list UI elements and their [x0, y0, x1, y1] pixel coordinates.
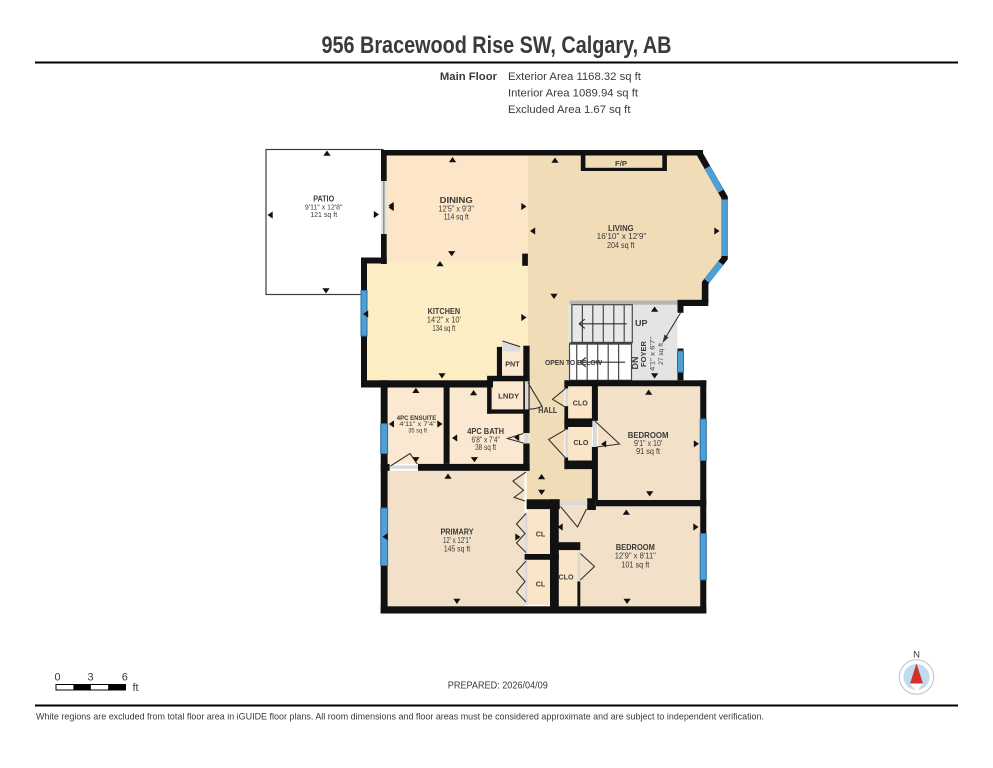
svg-text:CLO: CLO	[573, 399, 588, 408]
svg-text:CLO: CLO	[559, 572, 574, 581]
svg-text:OPEN TO BELOW: OPEN TO BELOW	[545, 358, 602, 367]
svg-text:114 sq ft: 114 sq ft	[444, 213, 470, 222]
svg-text:Excluded Area 1.67 sq ft: Excluded Area 1.67 sq ft	[508, 104, 631, 116]
svg-text:956 Bracewood Rise SW, Calgary: 956 Bracewood Rise SW, Calgary, AB	[322, 32, 672, 59]
svg-text:N: N	[913, 650, 920, 661]
svg-text:134 sq ft: 134 sq ft	[432, 324, 456, 333]
svg-text:27 sq ft: 27 sq ft	[658, 343, 665, 365]
svg-text:Exterior Area 1168.32 sq ft: Exterior Area 1168.32 sq ft	[508, 71, 642, 83]
svg-text:CLO: CLO	[573, 438, 588, 447]
svg-text:38 sq ft: 38 sq ft	[475, 443, 497, 452]
svg-text:CL: CL	[536, 530, 546, 539]
svg-text:101 sq ft: 101 sq ft	[621, 560, 650, 569]
svg-text:0: 0	[54, 671, 60, 683]
svg-text:UP: UP	[635, 318, 648, 328]
svg-text:6: 6	[122, 671, 128, 683]
svg-text:145 sq ft: 145 sq ft	[444, 544, 471, 553]
svg-text:CL: CL	[536, 580, 546, 589]
svg-text:FOYER: FOYER	[639, 340, 648, 367]
svg-text:LNDY: LNDY	[498, 392, 519, 401]
svg-text:F/P: F/P	[615, 159, 627, 168]
svg-text:PREPARED: 2026/04/09: PREPARED: 2026/04/09	[448, 681, 548, 692]
svg-text:ft: ft	[133, 682, 139, 694]
svg-text:BEDROOM: BEDROOM	[616, 542, 655, 552]
svg-text:91 sq ft: 91 sq ft	[636, 447, 661, 456]
svg-text:White regions are excluded fro: White regions are excluded from total fl…	[36, 712, 764, 722]
svg-text:Interior Area 1089.94 sq ft: Interior Area 1089.94 sq ft	[508, 88, 639, 100]
svg-text:35 sq ft: 35 sq ft	[408, 429, 427, 435]
svg-text:PRIMARY: PRIMARY	[440, 526, 473, 536]
svg-text:16'10" x 12'9": 16'10" x 12'9"	[597, 232, 647, 241]
svg-text:4PC ENSUITE: 4PC ENSUITE	[397, 415, 437, 422]
svg-text:4'11" x 7'4": 4'11" x 7'4"	[399, 422, 436, 428]
svg-text:204 sq ft: 204 sq ft	[607, 241, 635, 250]
svg-text:Main Floor: Main Floor	[440, 71, 498, 83]
svg-text:4'1" x 6'7": 4'1" x 6'7"	[649, 336, 656, 371]
svg-text:PNT: PNT	[505, 360, 520, 369]
svg-text:HALL: HALL	[538, 406, 557, 415]
svg-text:KITCHEN: KITCHEN	[428, 306, 461, 316]
svg-text:3: 3	[87, 671, 93, 683]
svg-text:121 sq ft: 121 sq ft	[310, 210, 338, 219]
